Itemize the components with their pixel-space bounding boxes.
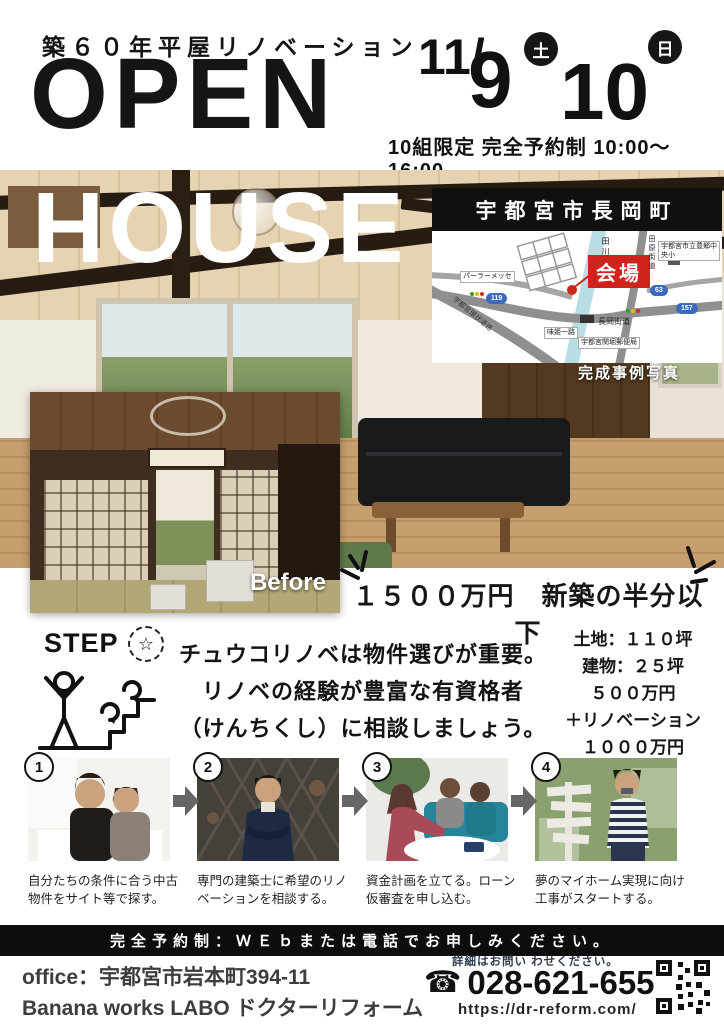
step-number-3: 3 — [362, 752, 392, 782]
date-day-9: 9 — [468, 40, 513, 120]
step-caption-2: 専門の建築士に希望のリノベーションを相談する。 — [197, 873, 351, 908]
venue-dot — [567, 285, 577, 295]
step-heading: STEP — [44, 628, 119, 659]
detail-renovation: ＋リノベーション — [543, 707, 723, 734]
step-caption-1: 自分たちの条件に合う中古物件をサイト等で探す。 — [28, 873, 182, 908]
website-url: https://dr-reform.com/ — [458, 1001, 637, 1018]
office-address: office：宇都宮市岩本町394-11 Banana works LABO ド… — [22, 962, 423, 1024]
title-open: OPEN — [30, 44, 337, 144]
qr-code — [654, 958, 712, 1016]
after-photo-caption: 完成事例写真 — [578, 362, 680, 383]
arrow-right-icon — [511, 786, 537, 816]
phone-number: 028-621-6551 — [467, 964, 673, 1002]
detail-price: ５００万円 — [543, 680, 723, 707]
advice-text: チュウコリノベは物件選びが重要。 リノベの経験が豊富な有資格者 （けんちくし）に… — [178, 636, 548, 747]
route-badge-119: 119 — [486, 293, 507, 304]
map-title: 宇都宮市長岡町 — [432, 188, 722, 231]
advice-line-2: リノベの経験が豊富な有資格者 — [178, 673, 548, 710]
access-map: 宇都宮市長岡町 会場 田 — [432, 188, 722, 363]
price-headline: １５００万円 新築の半分以下 — [352, 576, 704, 650]
date-day-10: 10 — [560, 52, 649, 132]
telephone-icon: ☎ — [424, 968, 461, 998]
step-number-2: 2 — [193, 752, 223, 782]
photo-transom-window — [148, 448, 226, 468]
route-badge-157: 157 — [676, 303, 698, 314]
step-number-1: 1 — [24, 752, 54, 782]
venue-box: 会場 — [588, 255, 650, 288]
photo-clutter-box — [150, 584, 186, 610]
step-caption-3: 資金計画を立てる。ローン仮審査を申し込む。 — [366, 873, 520, 908]
map-label-nagaoka-kaido: 長岡街道 — [598, 316, 630, 327]
map-label-school: 宇都宮市立豊郷中央小 — [658, 241, 720, 261]
photo-black-sofa — [358, 418, 570, 506]
photo-coffee-table — [372, 502, 524, 518]
dow-sunday-badge: 日 — [648, 30, 682, 64]
photo-clutter-box — [206, 560, 254, 602]
openhouse-flyer: 築６０年平屋リノベーション OPEN 11/ 9 土 10 日 10組限定 完全… — [0, 0, 724, 1024]
detail-renovation-price: １０００万円 — [543, 734, 723, 761]
step-number-4: 4 — [531, 752, 561, 782]
map-label-stop: 味姫一路 — [544, 327, 578, 339]
map-canvas: 会場 田川 パーラーメッセ 長岡街道 味姫一路 宇都宮環状道路 田原街道 宇都宮… — [432, 231, 722, 363]
photo-ceiling-light — [150, 396, 226, 436]
arrow-right-icon — [173, 786, 199, 816]
before-renovation-photo: Before — [30, 392, 340, 613]
before-label: Before — [250, 569, 326, 597]
person-climbing-stairs-icon — [36, 656, 166, 752]
reservation-bar: 完全予約制：ＷＥｂまたは電話でお申しみください。 — [0, 925, 724, 956]
arrow-right-icon — [342, 786, 368, 816]
office-line-1: office：宇都宮市岩本町394-11 — [22, 962, 423, 993]
map-label-parler: パーラーメッセ — [460, 271, 515, 283]
title-house: HOUSE — [32, 178, 408, 278]
office-line-2: Banana works LABO ドクターリフォーム — [22, 993, 423, 1024]
step-caption-4: 夢のマイホーム実現に向け工事がスタートする。 — [535, 873, 689, 908]
advice-line-3: （けんちくし）に相談しましょう。 — [178, 710, 548, 747]
dow-saturday-badge: 土 — [524, 32, 558, 66]
photo-shoji-screen — [44, 480, 148, 584]
map-label-tawara-kaido: 田原街道 — [646, 235, 656, 271]
route-badge-63: 63 — [650, 285, 668, 296]
detail-building: 建物：２５坪 — [543, 653, 723, 680]
map-river-label: 田川 — [600, 237, 611, 257]
map-label-post-office: 宇都宮関堀郵便局 — [578, 337, 640, 349]
phone-block: ☎ 028-621-6551 — [424, 964, 673, 1002]
